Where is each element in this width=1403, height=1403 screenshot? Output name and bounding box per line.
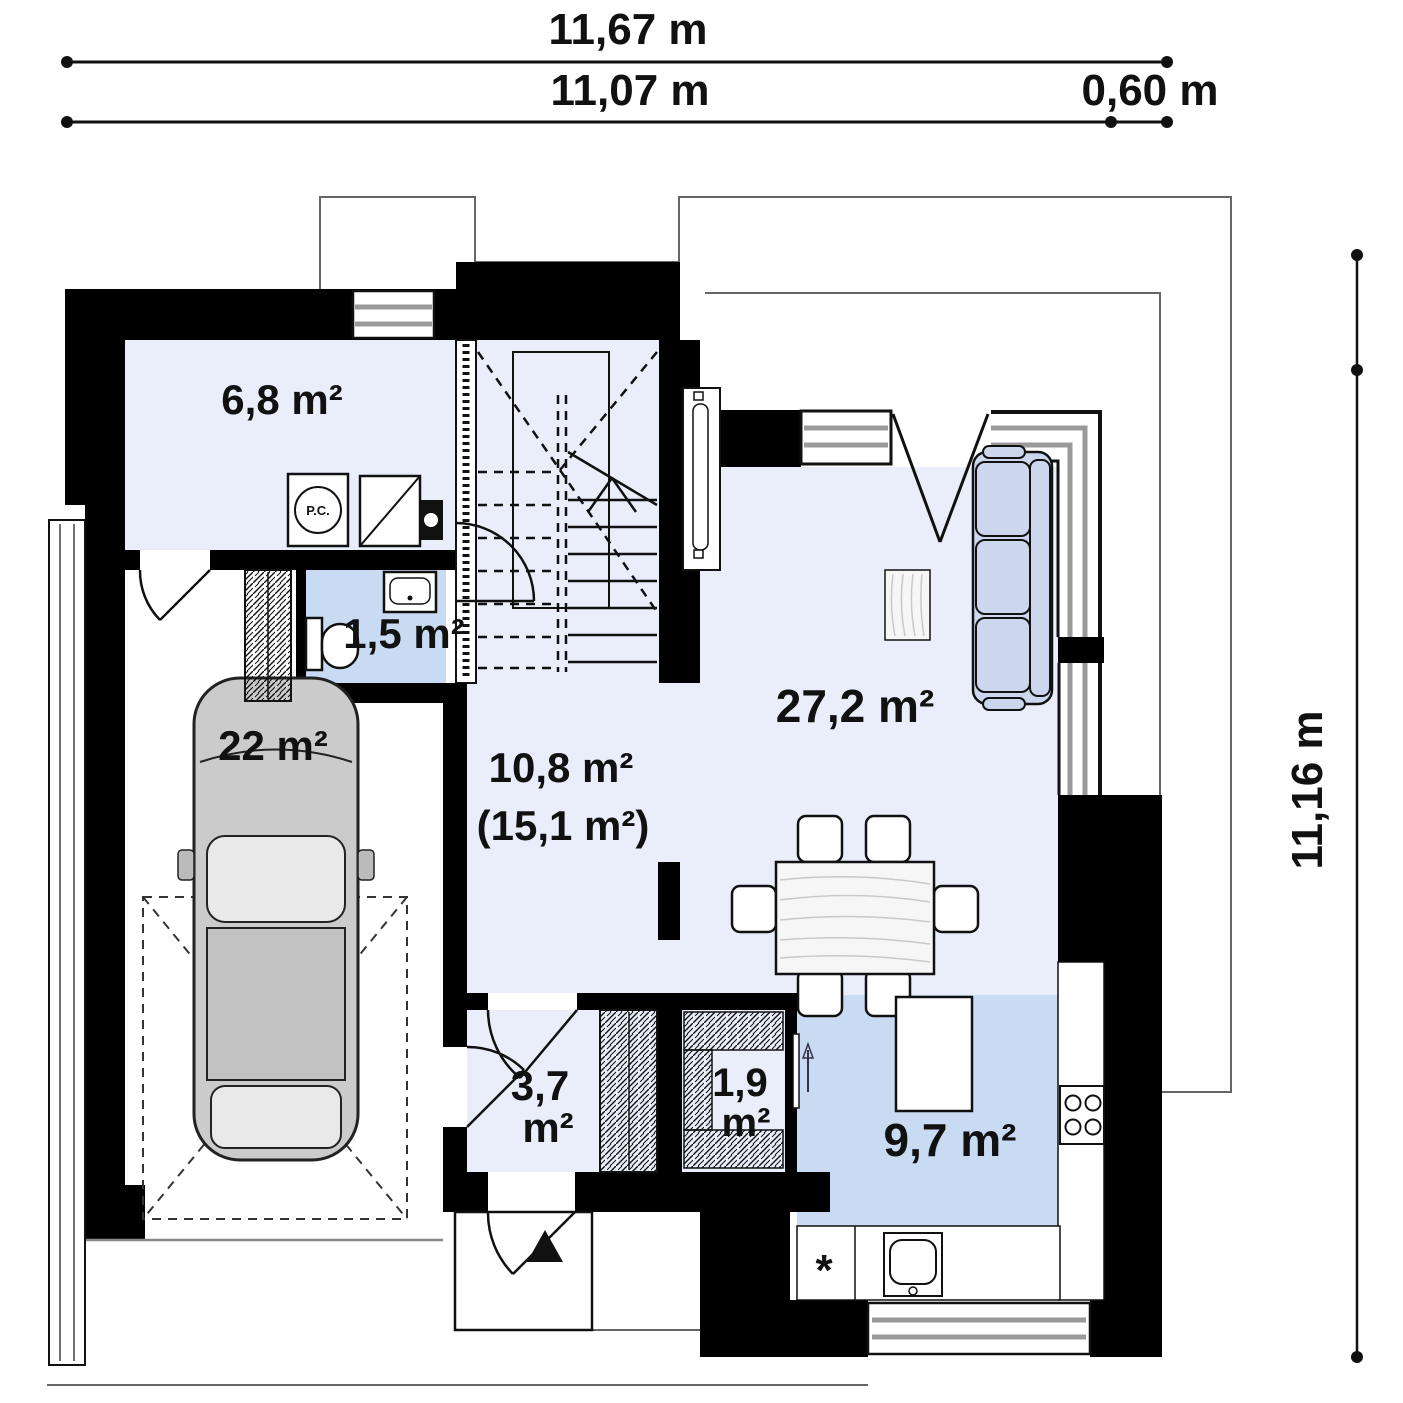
chair [798,816,842,862]
label-kitchen: 9,7 m² [884,1114,1017,1166]
dim-top-offset: 0,60 m [1082,66,1219,115]
window-kitchen [868,1303,1090,1354]
entry-wardrobe [600,1010,657,1172]
label-closet-2: m² [722,1101,771,1145]
counter-marker: * [815,1246,833,1295]
label-hall-1: 10,8 m² [489,744,634,791]
washer-label: P.C. [306,503,330,518]
dim-top-main: 11,07 m [550,66,709,115]
chair [866,816,910,862]
door-main-entrance [455,1212,592,1330]
label-entry-1: 3,7 [511,1062,569,1109]
floor-stairs [476,340,659,683]
chair [798,970,842,1016]
coffee-table [885,570,930,640]
label-hall-2: (15,1 m²) [477,802,650,849]
label-utility: 6,8 m² [221,376,342,423]
window-strip-west [49,520,85,1365]
window-utility [353,291,434,338]
label-bathroom: 1,5 m² [343,610,464,657]
dim-right-total: 11,16 m [1283,710,1332,869]
chair [934,886,978,932]
hob [1060,1086,1104,1144]
kitchen-sink [884,1233,942,1296]
boiler [419,500,443,540]
label-garage: 22 m² [218,722,328,769]
floor-plan-page: 11,67 m 11,07 m 0,60 m 11,16 m [0,0,1403,1403]
label-closet-1: 1,9 [712,1061,768,1105]
bathroom-sink [384,572,436,612]
chimney [658,862,680,940]
door-utility-garage [140,570,210,620]
dryer [360,476,420,546]
chair [732,886,776,932]
floor-plan: 11,67 m 11,07 m 0,60 m 11,16 m [0,0,1403,1403]
window-living-north [801,411,891,464]
radiator-niche [683,388,720,570]
dim-top-total: 11,67 m [548,5,707,54]
label-entry-2: m² [522,1104,573,1151]
sofa [973,446,1052,710]
label-living: 27,2 m² [776,680,935,732]
window-right-south [1059,663,1100,795]
utility-items: P.C. [288,474,443,546]
washing-machine: P.C. [288,474,348,546]
kitchen-island [896,997,972,1111]
coat-wardrobe-garage [245,570,291,701]
